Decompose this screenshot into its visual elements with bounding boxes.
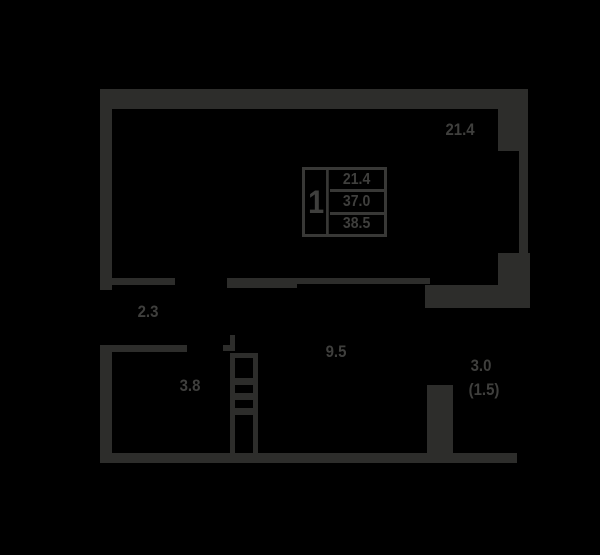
wall-bottom [100,453,517,463]
room-label-balcony: 3.0 [471,356,492,376]
shaft-stripe [235,378,253,385]
door-jamb-horizontal [223,345,235,351]
stamp-apartment-area: 37.0 [330,192,384,214]
apartment-stamp: 1 21.4 37.0 38.5 [302,167,387,237]
room-label-balcony-reduced: (1.5) [469,380,500,400]
wall-partition-left [112,278,175,285]
wall-left-lower [100,345,112,463]
wall-right-top-block [498,109,528,151]
shaft-stripe [235,408,253,415]
shaft-stripe [235,393,253,400]
stamp-total-area: 38.5 [330,215,384,234]
wall-top [100,89,528,109]
room-label-bathroom: 3.8 [180,376,201,396]
wall-right-bottom-block [498,253,530,308]
wall-balcony-divider [427,385,453,463]
stamp-areas: 21.4 37.0 38.5 [330,170,384,234]
wall-bottom-right-band [425,285,498,308]
wall-right-window [519,151,528,253]
room-label-living: 21.4 [445,120,474,140]
wall-partition-right [297,278,430,284]
wall-partition-mid [227,278,297,288]
room-label-kitchen: 9.5 [326,342,347,362]
ventilation-shaft [230,353,258,463]
wall-left-upper [100,89,112,290]
room-label-hallway: 2.3 [138,302,159,322]
floorplan-canvas: 21.4 2.3 3.8 9.5 3.0 (1.5) 1 21.4 37.0 3… [0,0,600,555]
wall-bathroom-top [102,345,187,352]
stamp-rooms-count: 1 [306,170,329,234]
stamp-living-area: 21.4 [330,170,384,192]
